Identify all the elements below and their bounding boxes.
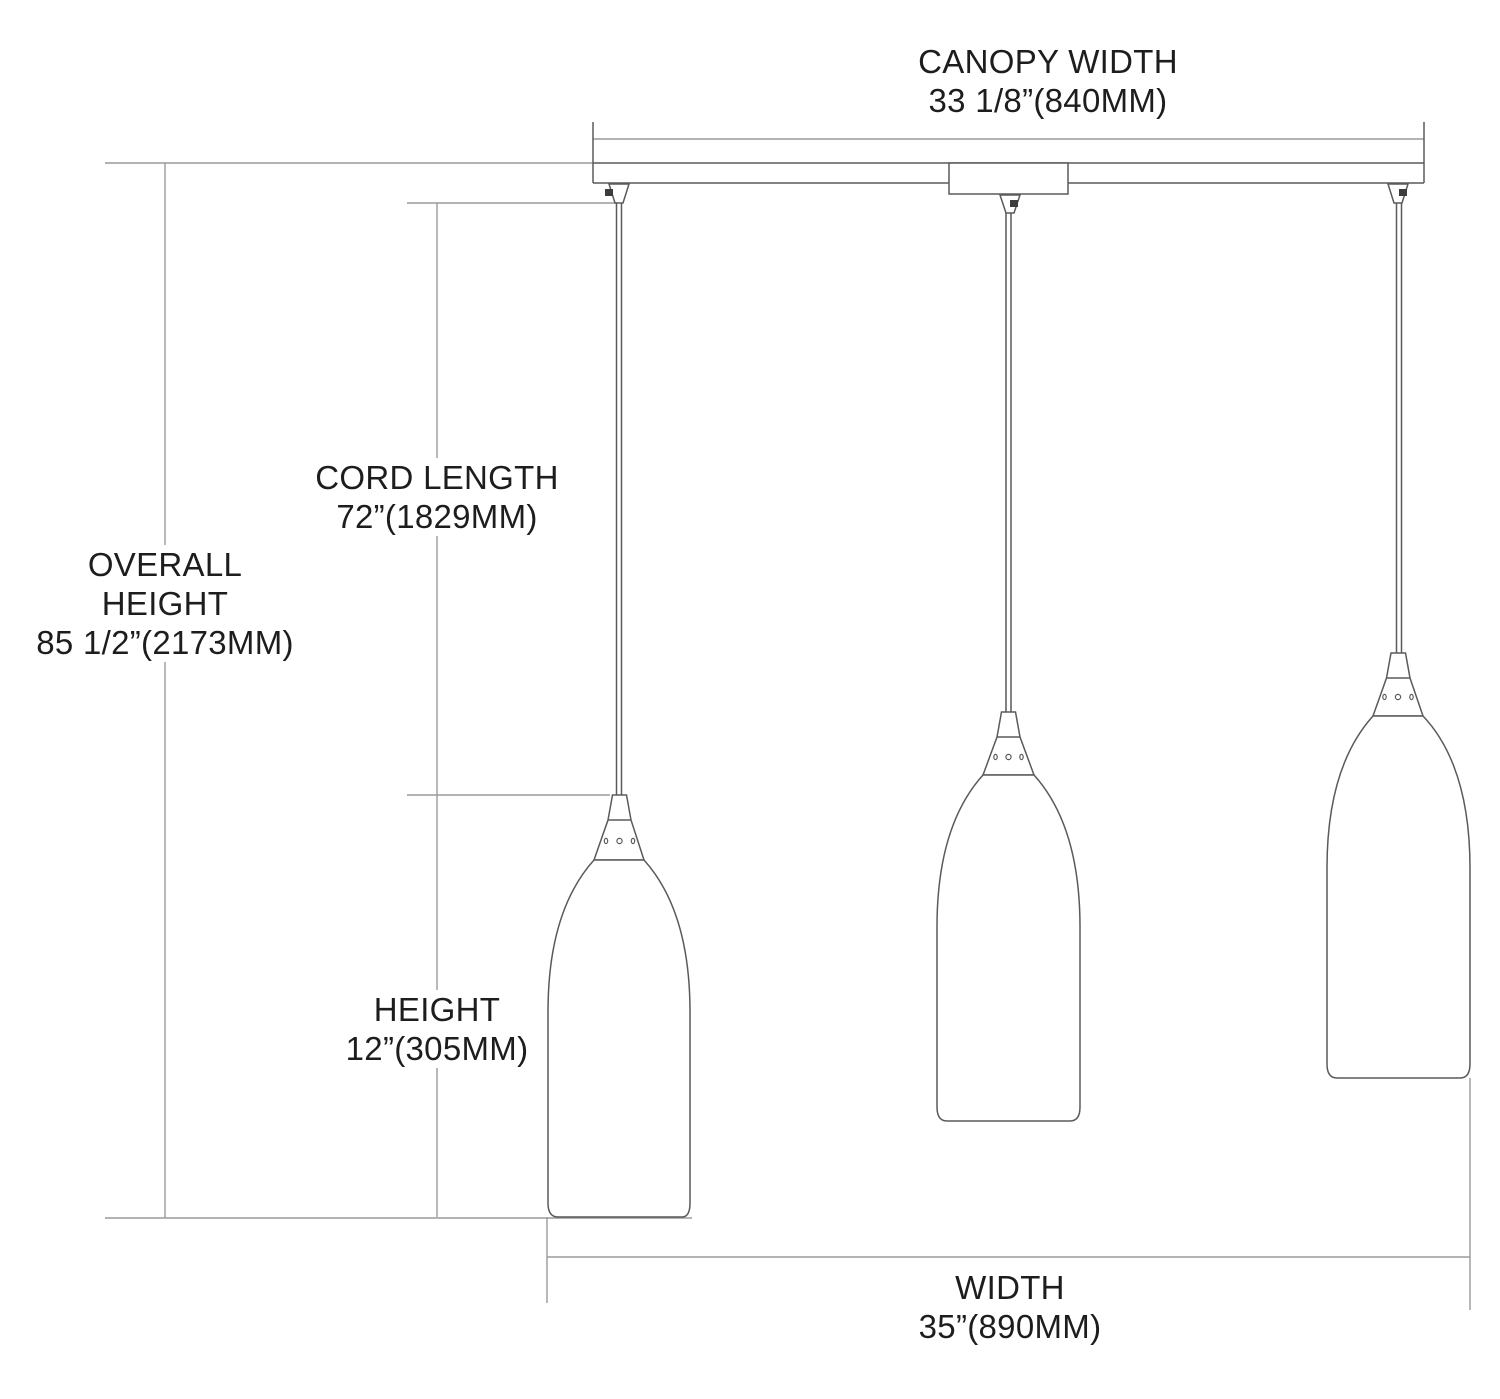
right-socket [1373, 653, 1423, 716]
overall-height-label-title-1: OVERALL [36, 545, 294, 584]
canopy-center-box [949, 163, 1068, 194]
canopy-width-label-value: 33 1/8”(840MM) [918, 81, 1178, 120]
right-hanger-bolt [1399, 189, 1407, 196]
shade-height-label-title: HEIGHT [346, 990, 529, 1029]
center-shade [937, 775, 1080, 1121]
overall-height-label-title-2: HEIGHT [36, 584, 294, 623]
width-label-value: 35”(890MM) [919, 1307, 1102, 1346]
overall-height-label: OVERALL HEIGHT 85 1/2”(2173MM) [26, 545, 304, 662]
fixture-line-drawing [0, 0, 1500, 1399]
shade-height-label: HEIGHT 12”(305MM) [336, 990, 539, 1068]
canopy-width-label: CANOPY WIDTH 33 1/8”(840MM) [908, 42, 1188, 120]
left-shade [548, 860, 690, 1217]
right-shade [1327, 716, 1470, 1078]
center-hanger-bolt [1010, 200, 1018, 207]
shade-height-label-value: 12”(305MM) [346, 1029, 529, 1068]
overall-height-label-value: 85 1/2”(2173MM) [36, 623, 294, 662]
width-label-title: WIDTH [919, 1268, 1102, 1307]
left-hanger-bolt [605, 189, 613, 196]
cord-length-label-title: CORD LENGTH [315, 458, 559, 497]
center-socket [983, 712, 1034, 775]
cord-length-label-value: 72”(1829MM) [315, 497, 559, 536]
cord-length-label: CORD LENGTH 72”(1829MM) [305, 458, 569, 536]
dimension-diagram-page: CANOPY WIDTH 33 1/8”(840MM) CORD LENGTH … [0, 0, 1500, 1399]
width-label: WIDTH 35”(890MM) [909, 1268, 1112, 1346]
left-socket [594, 795, 644, 860]
canopy-width-label-title: CANOPY WIDTH [918, 42, 1178, 81]
